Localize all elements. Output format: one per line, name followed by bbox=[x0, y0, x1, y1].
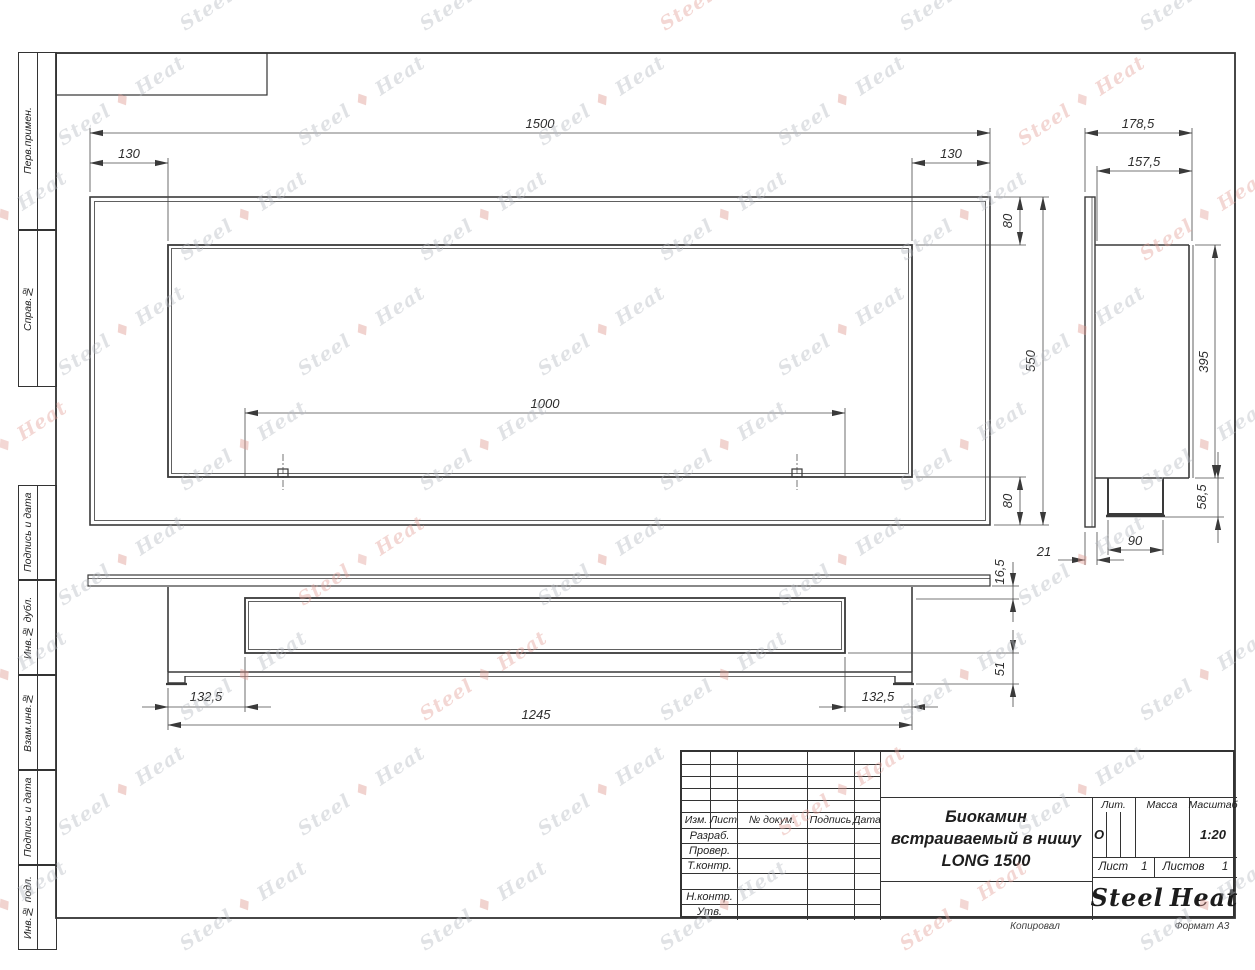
row-tkontr: Т.контр. bbox=[682, 858, 737, 873]
sheets-cell: Листов 1 bbox=[1154, 857, 1237, 877]
footer-format: Формат А3 bbox=[1152, 921, 1252, 932]
clip-left bbox=[278, 454, 288, 490]
massa-label: Масса bbox=[1135, 797, 1189, 812]
front-view bbox=[90, 197, 990, 525]
left-strip-label: Взам.инв.№ bbox=[19, 676, 37, 769]
front-dimensions bbox=[90, 128, 1049, 525]
sheet-cell: Лист 1 bbox=[1092, 857, 1154, 877]
dim-front-left-offset: 130 bbox=[118, 146, 140, 161]
dim-front-right-offset: 130 bbox=[940, 146, 962, 161]
col-data: Дата bbox=[854, 812, 880, 828]
footer-kopiroval: Копировал bbox=[985, 921, 1085, 932]
list-value: 1 bbox=[1141, 861, 1147, 873]
left-strip-label: Инв.№ подл. bbox=[19, 866, 37, 949]
company-logo: Steel Heat bbox=[1092, 877, 1237, 918]
dim-side-body-depth: 157,5 bbox=[1128, 154, 1161, 169]
title-line-2: встраиваемый в нишу bbox=[891, 828, 1081, 850]
title-line-1: Биокамин bbox=[945, 806, 1027, 828]
dim-bottom-body-width: 1245 bbox=[522, 707, 552, 722]
lit-value: О bbox=[1092, 812, 1106, 857]
row-razrab: Разраб. bbox=[682, 828, 737, 843]
dim-front-opening: 1000 bbox=[531, 396, 561, 411]
left-strip-cell: Инв.№ подл. bbox=[18, 865, 57, 950]
row-nkontr: Н.контр. bbox=[682, 889, 737, 904]
top-left-stamp-box bbox=[56, 53, 267, 95]
drawing-sheet: 1500 130 130 1000 80 550 80 bbox=[0, 0, 1255, 970]
dim-front-top: 80 bbox=[1000, 213, 1015, 228]
document-title: Биокамин встраиваемый в нишу LONG 1500 bbox=[880, 797, 1092, 881]
masshtab-value: 1:20 bbox=[1189, 812, 1237, 857]
burner-box bbox=[1108, 478, 1163, 514]
left-strip-cell: Справ.№ bbox=[18, 230, 57, 387]
col-ndoc: № докум. bbox=[737, 812, 807, 828]
left-strip-cell: Перв.примен. bbox=[18, 52, 57, 230]
left-strip-label: Справ.№ bbox=[19, 231, 37, 386]
dim-front-total: 1500 bbox=[526, 116, 556, 131]
dim-bottom-flange-gap: 16,5 bbox=[992, 559, 1007, 585]
left-strip-label: Инв.№ дубл. bbox=[19, 581, 37, 674]
foot-left bbox=[168, 672, 185, 683]
row-utv: Утв. bbox=[682, 904, 737, 920]
row-prover: Провер. bbox=[682, 843, 737, 858]
listov-label: Листов bbox=[1163, 861, 1205, 873]
dim-side-total-depth: 178,5 bbox=[1122, 116, 1155, 131]
col-list: Лист bbox=[710, 812, 737, 828]
dim-bottom-left-offset: 132,5 bbox=[190, 689, 223, 704]
dim-side-flange: 21 bbox=[1036, 544, 1051, 559]
dim-bottom-foot-height: 51 bbox=[992, 662, 1007, 676]
side-view bbox=[1085, 197, 1193, 527]
listov-value: 1 bbox=[1222, 861, 1228, 873]
clip-right bbox=[792, 454, 802, 490]
left-strip-cell: Подпись и дата bbox=[18, 485, 57, 580]
left-strip-label: Подпись и дата bbox=[19, 771, 37, 864]
bottom-dimensions bbox=[142, 562, 1019, 730]
dim-side-burner-height: 58,5 bbox=[1194, 484, 1209, 510]
left-strip-label: Подпись и дата bbox=[19, 486, 37, 579]
dim-front-bottom: 80 bbox=[1000, 493, 1015, 508]
left-strip-label: Перв.примен. bbox=[19, 53, 37, 229]
col-podpis: Подпись bbox=[807, 812, 854, 828]
dim-front-height: 550 bbox=[1023, 349, 1038, 371]
col-izm: Изм. bbox=[682, 812, 710, 828]
logo-text-heat: Heat bbox=[1170, 883, 1239, 912]
foot-right bbox=[895, 672, 912, 683]
left-strip-cell: Подпись и дата bbox=[18, 770, 57, 865]
title-block: Изм. Лист № докум. Подпись Дата Разраб. … bbox=[680, 750, 1235, 918]
masshtab-label: Масштаб bbox=[1189, 797, 1237, 812]
dim-side-body-height: 395 bbox=[1196, 350, 1211, 372]
list-label: Лист bbox=[1098, 861, 1128, 873]
left-strip-cell: Взам.инв.№ bbox=[18, 675, 57, 770]
left-strip-cell: Инв.№ дубл. bbox=[18, 580, 57, 675]
dim-side-burner-width: 90 bbox=[1128, 533, 1143, 548]
logo-text-steel: Steel bbox=[1091, 883, 1164, 912]
dim-bottom-right-offset: 132,5 bbox=[862, 689, 895, 704]
burner-slot bbox=[245, 598, 845, 653]
bottom-view bbox=[88, 575, 990, 684]
title-line-3: LONG 1500 bbox=[942, 850, 1031, 872]
lit-label: Лит. bbox=[1092, 797, 1135, 812]
